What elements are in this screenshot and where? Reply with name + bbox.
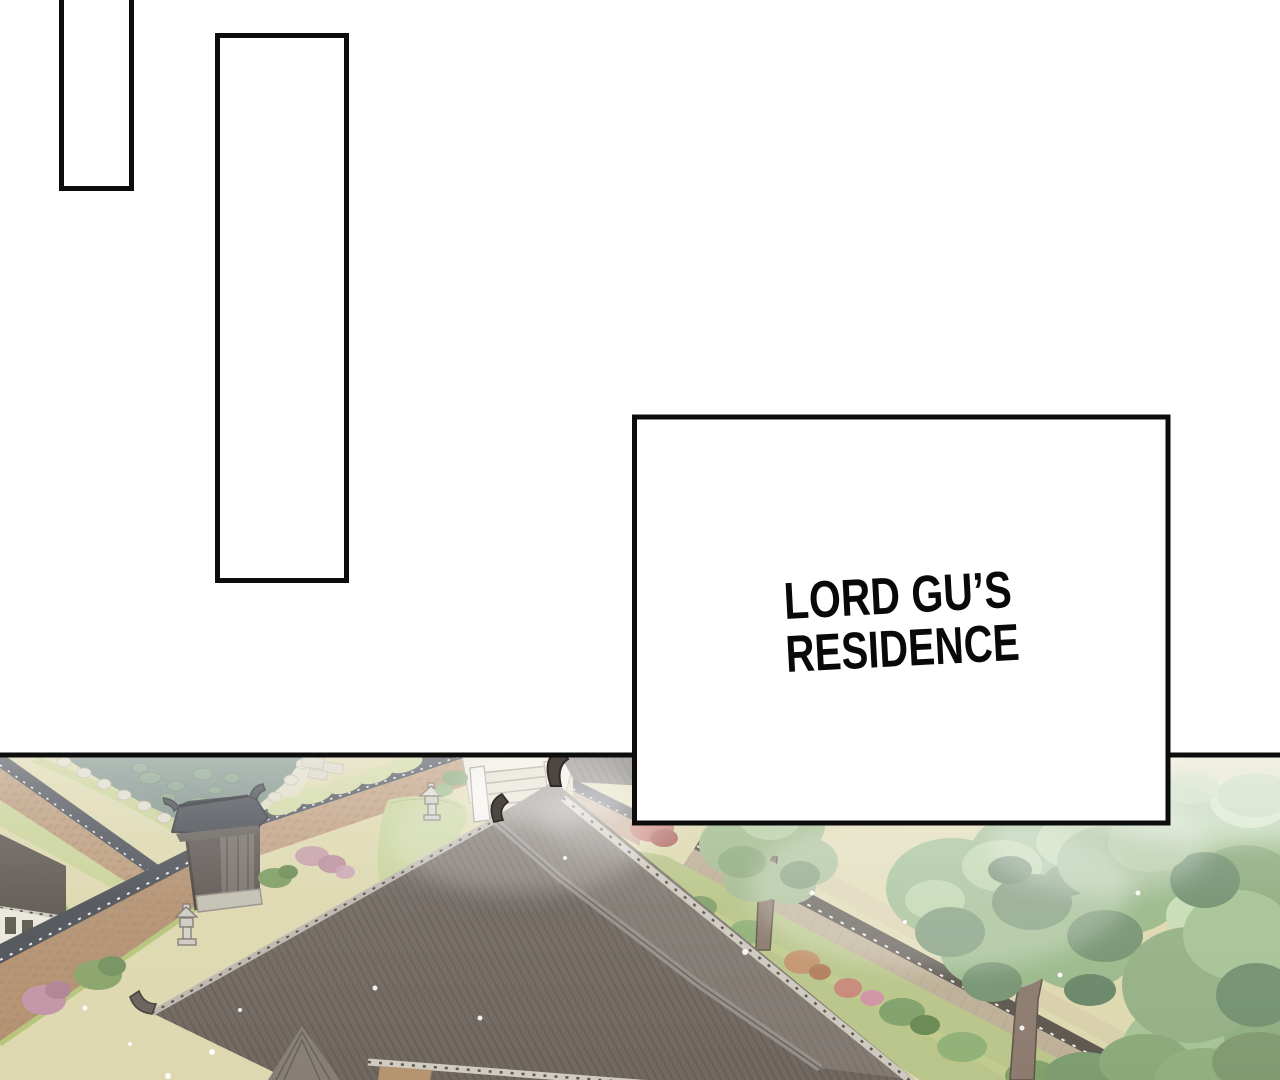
svg-text:RESIDENCE: RESIDENCE [784,614,1021,684]
